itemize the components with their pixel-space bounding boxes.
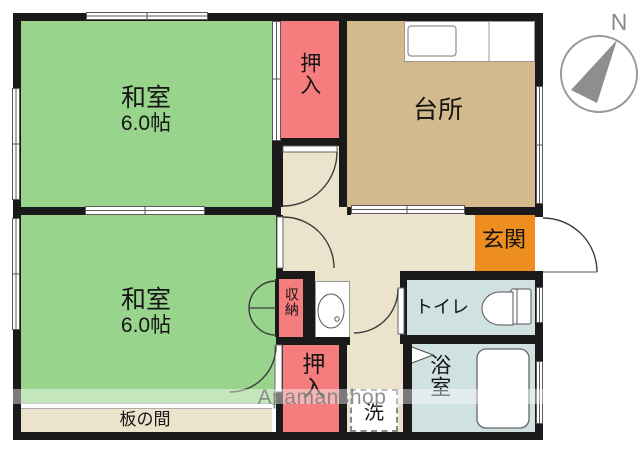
door-arc xyxy=(283,152,337,206)
toilet-tank-icon xyxy=(511,289,531,324)
floor-plan: 和室 6.0帖 和室 6.0帖 台所 押入 押入 収納 玄関 トイレ 浴室 洗 … xyxy=(0,0,640,449)
closet-top-label: 押入 xyxy=(297,52,321,96)
door-arc xyxy=(354,289,398,333)
storage-label: 収納 xyxy=(283,287,299,317)
room-washitsu-1-size: 6.0帖 xyxy=(121,112,171,136)
room-washitsu-2-label: 和室 xyxy=(121,286,171,314)
toilet-label: トイレ xyxy=(415,297,469,317)
watermark-text: Apamanshop xyxy=(258,386,387,410)
door-leaf xyxy=(277,217,283,268)
door-leaf xyxy=(398,288,404,334)
compass-icon xyxy=(561,36,637,112)
washbasin-icon xyxy=(318,294,344,328)
room-washitsu-1-label: 和室 xyxy=(121,84,171,112)
door-leaf xyxy=(283,146,337,152)
toilet-bowl-icon xyxy=(482,292,513,325)
kitchen-sink-icon xyxy=(408,26,456,56)
compass-north-label: N xyxy=(611,9,628,36)
room-washitsu-2-size: 6.0帖 xyxy=(121,314,171,338)
entrance-door-arc xyxy=(543,218,597,272)
door-arc xyxy=(283,217,334,268)
itanoma-label: 板の間 xyxy=(120,410,171,429)
entrance-label: 玄関 xyxy=(482,228,526,253)
kitchen-label: 台所 xyxy=(413,96,463,124)
